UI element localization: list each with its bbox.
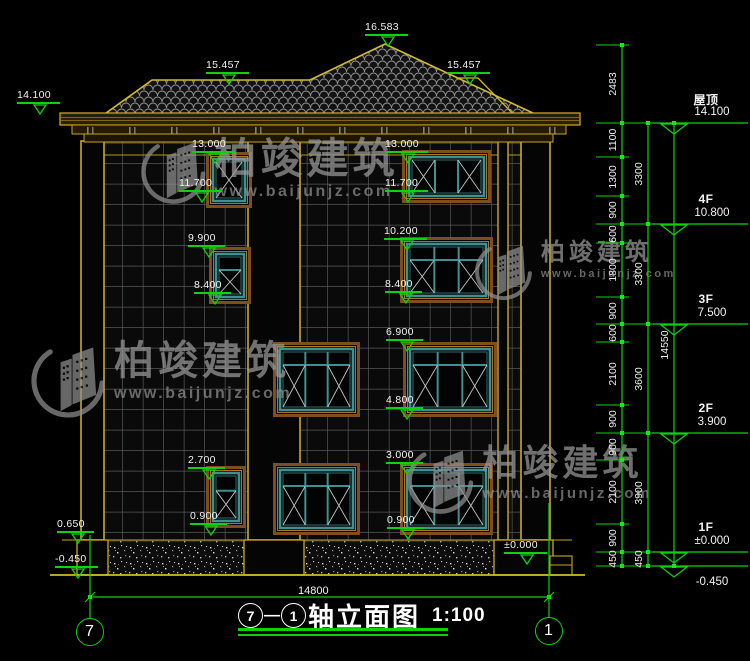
dimension-tick-dot xyxy=(620,43,624,47)
title-axis-start-bubble: 7 xyxy=(238,603,263,628)
dimension-tick-dot xyxy=(646,431,650,435)
dimension-tick-dot xyxy=(620,155,624,159)
dimension-tick-dot xyxy=(620,522,624,526)
drawing-canvas: 柏竣建筑 www.baijunjz.com 柏竣建筑 www.baijunjz.… xyxy=(0,0,750,661)
dimension-tick-dot xyxy=(620,403,624,407)
dimension-tick-dot xyxy=(620,458,624,462)
dimension-tick-dot xyxy=(672,121,676,125)
title-underline-thick xyxy=(238,628,448,631)
dimension-tick-dot xyxy=(620,241,624,245)
dimension-tick-dot xyxy=(646,550,650,554)
title-scale: 1:100 xyxy=(432,605,486,627)
dimension-tick-dot xyxy=(620,340,624,344)
title-dash: — xyxy=(264,607,280,625)
title-underline-thin xyxy=(238,634,448,636)
floor-level-triangle-icon xyxy=(661,567,687,577)
dimension-tick-dot xyxy=(646,222,650,226)
dimension-tick-dot xyxy=(620,295,624,299)
dimension-linework xyxy=(0,0,750,661)
dimension-tick-dot xyxy=(646,322,650,326)
dimension-tick-dot xyxy=(672,564,676,568)
dimension-tick-dot xyxy=(620,194,624,198)
title-axis-end-bubble: 1 xyxy=(281,603,306,628)
